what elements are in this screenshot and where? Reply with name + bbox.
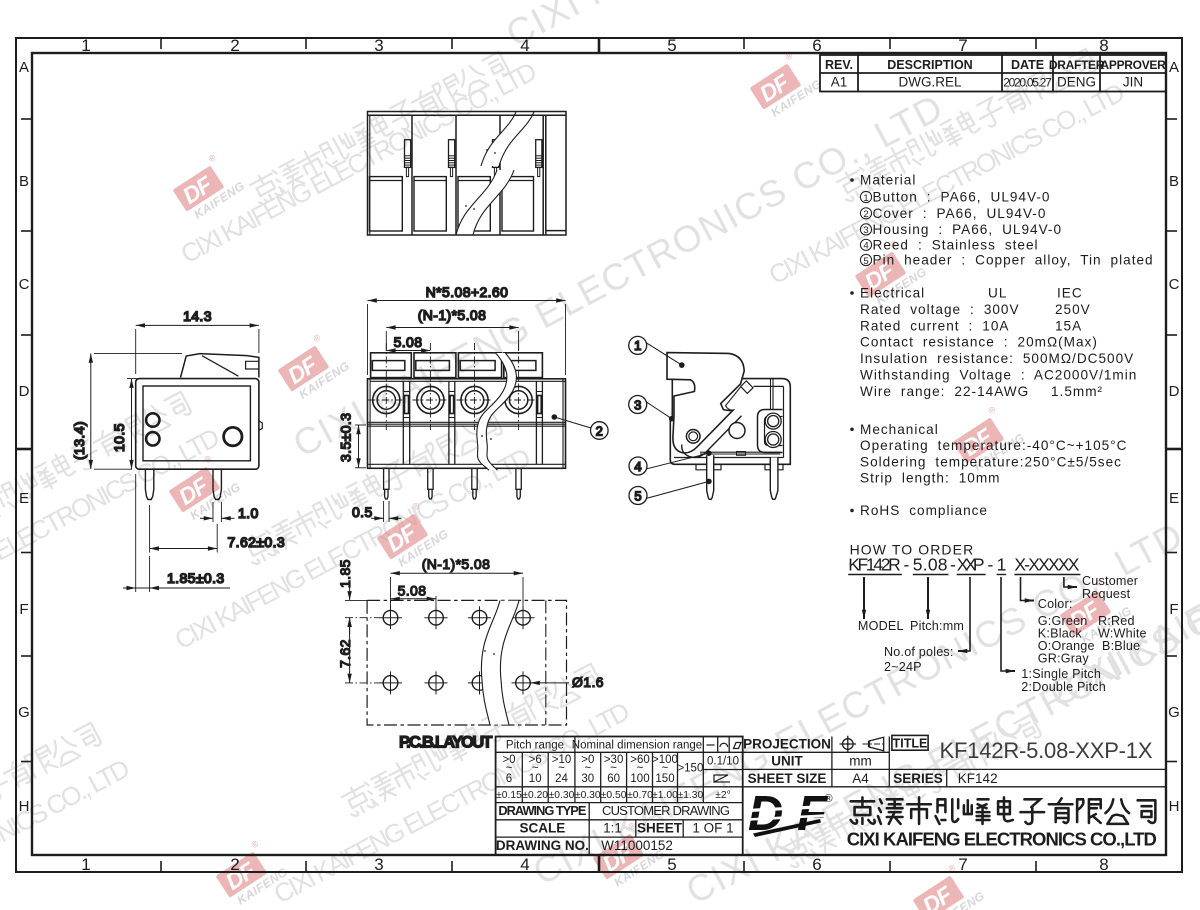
svg-text:1.0: 1.0 <box>238 505 259 521</box>
svg-text:B: B <box>19 173 29 190</box>
svg-text:KF142: KF142 <box>958 771 998 786</box>
svg-text:2: 2 <box>230 855 239 874</box>
svg-text:E: E <box>1169 490 1179 507</box>
svg-text:A1: A1 <box>831 75 848 90</box>
svg-text:8: 8 <box>1099 855 1108 874</box>
svg-text:14.3: 14.3 <box>183 308 212 324</box>
svg-text:PROJECTION: PROJECTION <box>743 737 831 752</box>
svg-text:D: D <box>19 383 30 400</box>
svg-text:3: 3 <box>374 36 383 55</box>
svg-text:Strip length: 10mm: Strip length: 10mm <box>860 471 1001 486</box>
svg-text:2020.05.27: 2020.05.27 <box>1003 76 1052 90</box>
svg-text:Electrical: Electrical <box>860 286 925 301</box>
svg-text:DESCRIPTION: DESCRIPTION <box>887 58 972 72</box>
svg-text:7.62±0.3: 7.62±0.3 <box>228 534 286 550</box>
svg-text:(13.4): (13.4) <box>71 421 87 460</box>
svg-text:SHEET SIZE: SHEET SIZE <box>748 771 827 786</box>
svg-text:±0.15: ±0.15 <box>496 790 522 801</box>
svg-text:C: C <box>1169 276 1180 293</box>
svg-text:P.C.B.LAYOUT: P.C.B.LAYOUT <box>399 734 492 752</box>
svg-text:DATE: DATE <box>1011 58 1044 72</box>
svg-text:G: G <box>1168 704 1180 721</box>
svg-text:F: F <box>1169 601 1178 618</box>
svg-text:±1.30: ±1.30 <box>678 790 704 801</box>
svg-text:1.85: 1.85 <box>337 559 353 588</box>
svg-text:E: E <box>19 490 29 507</box>
svg-text:3.5±0.3: 3.5±0.3 <box>338 413 354 462</box>
svg-text:0.5: 0.5 <box>352 504 373 520</box>
svg-text:RoHS compliance: RoHS compliance <box>860 503 988 518</box>
svg-text:Housing : PA66, UL94V-0: Housing : PA66, UL94V-0 <box>873 222 1063 237</box>
svg-text:Operating temperature:-40°C~+1: Operating temperature:-40°C~+105°C <box>860 438 1127 453</box>
svg-text:4: 4 <box>634 459 641 474</box>
svg-text:Pitch:mm: Pitch:mm <box>910 619 964 633</box>
svg-text:24: 24 <box>555 773 568 785</box>
svg-text:1 OF 1: 1 OF 1 <box>692 820 733 835</box>
svg-text:Pitch range: Pitch range <box>506 740 564 752</box>
svg-text:SHEET: SHEET <box>637 820 683 835</box>
svg-text:3: 3 <box>863 225 868 236</box>
svg-text:A4: A4 <box>852 771 869 786</box>
svg-text:Request: Request <box>1082 587 1131 601</box>
svg-text:Material: Material <box>860 173 916 188</box>
svg-text:15A: 15A <box>1055 318 1082 333</box>
svg-text:±0.50: ±0.50 <box>601 790 627 801</box>
svg-text:CUSTOMER DRAWING: CUSTOMER DRAWING <box>602 803 730 818</box>
svg-text:2: 2 <box>230 36 239 55</box>
svg-text:H: H <box>1169 798 1180 815</box>
svg-text:1: 1 <box>81 36 90 55</box>
svg-text:JIN: JIN <box>1123 75 1143 90</box>
svg-text:5: 5 <box>667 36 676 55</box>
svg-text:1:Single Pitch: 1:Single Pitch <box>1021 667 1101 681</box>
svg-text:D: D <box>1169 383 1180 400</box>
svg-text:250V: 250V <box>1055 302 1091 317</box>
svg-text:SERIES: SERIES <box>893 771 943 786</box>
svg-text:IEC: IEC <box>1057 286 1083 301</box>
svg-text:A: A <box>1169 59 1179 76</box>
svg-text:±1.00: ±1.00 <box>652 790 678 801</box>
svg-text:±0.30: ±0.30 <box>575 790 601 801</box>
svg-text:REV.: REV. <box>825 58 853 72</box>
svg-text:1.85±0.3: 1.85±0.3 <box>167 570 225 586</box>
svg-text:B:Blue: B:Blue <box>1102 639 1140 653</box>
svg-text:F: F <box>19 601 28 618</box>
svg-text:2: 2 <box>596 424 603 439</box>
svg-text:2~24P: 2~24P <box>884 660 922 674</box>
svg-text:10.5: 10.5 <box>111 423 127 452</box>
svg-text:W11000152: W11000152 <box>601 838 673 853</box>
svg-text:30: 30 <box>581 773 594 785</box>
svg-text:DRAWING TYPE: DRAWING TYPE <box>498 803 586 818</box>
svg-text:XXP: XXP <box>957 555 986 575</box>
svg-text:KF142R: KF142R <box>848 555 902 575</box>
svg-text:Soldering temperature:250°C±5/: Soldering temperature:250°C±5/5sec <box>860 454 1122 469</box>
svg-text:3: 3 <box>374 855 383 874</box>
svg-text:TITLE: TITLE <box>893 737 928 751</box>
svg-text:DRAFTER: DRAFTER <box>1049 58 1105 72</box>
svg-text:Withstanding Voltage : AC2000V: Withstanding Voltage : AC2000V/1min <box>860 367 1137 382</box>
svg-text:GR:Gray: GR:Gray <box>1038 652 1090 666</box>
svg-text:Color:: Color: <box>1038 597 1073 611</box>
svg-text:5: 5 <box>667 855 676 874</box>
svg-text:7: 7 <box>958 855 967 874</box>
svg-text:Reed : Stainless steel: Reed : Stainless steel <box>873 237 1039 252</box>
svg-text:N*5.08+2.60: N*5.08+2.60 <box>426 284 509 300</box>
svg-text:1.5mm²: 1.5mm² <box>1051 384 1103 399</box>
svg-text:4: 4 <box>520 36 529 55</box>
svg-text:(N-1)*5.08: (N-1)*5.08 <box>418 307 487 323</box>
svg-text:10: 10 <box>529 773 542 785</box>
svg-text:3: 3 <box>634 397 641 412</box>
svg-text:-: - <box>988 555 995 575</box>
svg-text:150: 150 <box>655 773 674 785</box>
svg-text:Mechanical: Mechanical <box>860 422 939 437</box>
svg-text:KF142R-5.08-XXP-1X: KF142R-5.08-XXP-1X <box>940 738 1153 763</box>
svg-text:Rated voltage : 300V: Rated voltage : 300V <box>860 302 1020 317</box>
svg-text:Contact resistance : 20mΩ(Max): Contact resistance : 20mΩ(Max) <box>860 335 1098 350</box>
svg-text:(N-1)*5.08: (N-1)*5.08 <box>422 556 491 572</box>
svg-text:2:Double Pitch: 2:Double Pitch <box>1021 680 1106 694</box>
svg-text:5.08: 5.08 <box>398 583 427 599</box>
svg-text:6: 6 <box>506 773 512 785</box>
svg-text:±2°: ±2° <box>715 790 731 801</box>
svg-text:H: H <box>19 798 30 815</box>
svg-text:APPROVER: APPROVER <box>1101 58 1167 72</box>
svg-text:1: 1 <box>81 855 90 874</box>
svg-text:-: - <box>904 555 911 575</box>
svg-text:B: B <box>1169 173 1179 190</box>
svg-text:6: 6 <box>812 36 821 55</box>
svg-text:7: 7 <box>958 36 967 55</box>
svg-text:C: C <box>19 276 30 293</box>
svg-text:1: 1 <box>863 193 868 204</box>
svg-text:5: 5 <box>634 488 641 503</box>
svg-text:CIXI KAIFENG ELECTRONICS CO.,L: CIXI KAIFENG ELECTRONICS CO.,LTD <box>847 829 1157 850</box>
svg-text:1: 1 <box>997 555 1008 575</box>
svg-text:G: G <box>18 704 30 721</box>
svg-text:2: 2 <box>863 209 868 220</box>
svg-text:DWG.REL: DWG.REL <box>898 75 961 90</box>
svg-text:1: 1 <box>634 338 641 353</box>
svg-text:60: 60 <box>607 773 620 785</box>
svg-text:±0.30: ±0.30 <box>549 790 575 801</box>
svg-text:0.1/10: 0.1/10 <box>707 756 739 768</box>
svg-text:No.of poles:: No.of poles: <box>884 645 954 659</box>
svg-text:MODEL: MODEL <box>858 619 904 633</box>
svg-text:Ø1.6: Ø1.6 <box>572 674 604 690</box>
svg-text:A: A <box>19 59 29 76</box>
svg-text:UNIT: UNIT <box>771 754 803 769</box>
svg-text:mm: mm <box>849 754 872 769</box>
svg-text:Insulation resistance: 500MΩ/D: Insulation resistance: 500MΩ/DC500V <box>860 351 1134 366</box>
svg-text:Customer: Customer <box>1082 574 1138 588</box>
svg-text:7.62: 7.62 <box>337 639 353 668</box>
svg-text:1:1: 1:1 <box>603 820 622 835</box>
svg-text:SCALE: SCALE <box>520 820 566 835</box>
svg-text:Button : PA66, UL94V-0: Button : PA66, UL94V-0 <box>873 190 1051 205</box>
svg-text:4: 4 <box>520 855 529 874</box>
svg-text:6: 6 <box>812 855 821 874</box>
svg-text:Rated current : 10A: Rated current : 10A <box>860 318 1009 333</box>
svg-text:UL: UL <box>988 286 1007 301</box>
svg-text:>150: >150 <box>677 763 703 775</box>
svg-text:5: 5 <box>863 256 868 267</box>
svg-text:100: 100 <box>630 773 649 785</box>
svg-text:Nominal dimension range: Nominal dimension range <box>572 740 702 752</box>
svg-text:5.08: 5.08 <box>394 334 423 350</box>
svg-text:±0.20: ±0.20 <box>522 790 548 801</box>
svg-text:Wire range: 22-14AWG: Wire range: 22-14AWG <box>860 384 1029 399</box>
svg-text:DENG: DENG <box>1057 75 1096 90</box>
svg-text:8: 8 <box>1099 36 1108 55</box>
svg-text:±0.70: ±0.70 <box>627 790 653 801</box>
svg-text:Cover : PA66, UL94V-0: Cover : PA66, UL94V-0 <box>873 206 1047 221</box>
svg-text:X-XXXXX: X-XXXXX <box>1014 555 1080 575</box>
svg-text:Pin header : Copper alloy, Tin: Pin header : Copper alloy, Tin plated <box>873 253 1154 268</box>
svg-text:5.08: 5.08 <box>913 555 949 575</box>
svg-text:®: ® <box>825 793 833 805</box>
svg-text:4: 4 <box>863 241 868 252</box>
svg-text:DRAWING NO.: DRAWING NO. <box>496 838 589 853</box>
